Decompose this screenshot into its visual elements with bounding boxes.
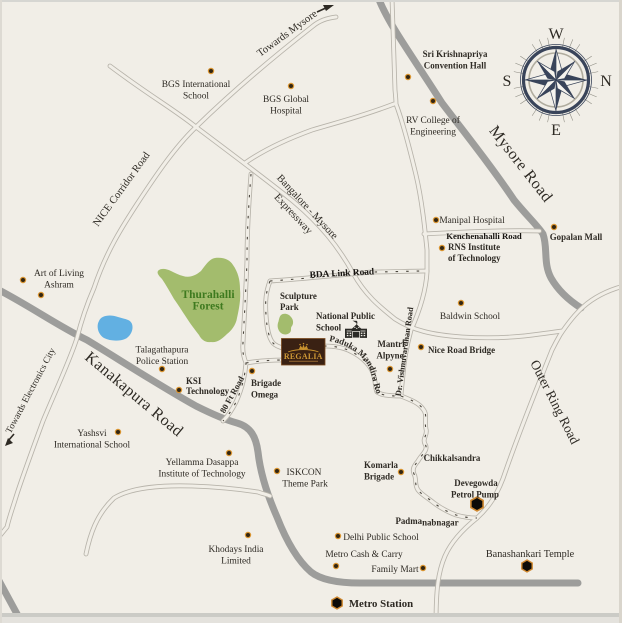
svg-text:Kenchenahalli Road: Kenchenahalli Road	[446, 231, 522, 241]
svg-text:RNS Instituteof Technology: RNS Instituteof Technology	[448, 242, 501, 263]
svg-text:Metro Cash & Carry: Metro Cash & Carry	[325, 550, 403, 560]
svg-text:Baldwin School: Baldwin School	[440, 312, 501, 322]
svg-text:Family Mart: Family Mart	[371, 565, 419, 575]
svg-text:Yellamma DasappaInstitute of T: Yellamma DasappaInstitute of Technology	[158, 458, 245, 480]
svg-text:Chikkalsandra: Chikkalsandra	[424, 453, 481, 463]
svg-text:TalagathapuraPolice Station: TalagathapuraPolice Station	[136, 346, 190, 368]
svg-text:Delhi Public School: Delhi Public School	[343, 533, 419, 543]
svg-text:Nice Road Bridge: Nice Road Bridge	[428, 345, 495, 355]
svg-text:Gopalan Mall: Gopalan Mall	[550, 232, 603, 242]
svg-text:Metro Station: Metro Station	[349, 598, 413, 610]
svg-text:ISKCONTheme Park: ISKCONTheme Park	[282, 468, 328, 490]
svg-text:REGALIA: REGALIA	[284, 352, 323, 361]
svg-text:BrigadeOmega: BrigadeOmega	[251, 378, 281, 400]
svg-text:N: N	[600, 73, 612, 90]
svg-text:KomarlaBrigade: KomarlaBrigade	[364, 460, 399, 482]
svg-text:Sri KrishnapriyaConvention Hal: Sri KrishnapriyaConvention Hall	[423, 49, 488, 71]
svg-text:Banashankari Temple: Banashankari Temple	[486, 549, 575, 560]
svg-text:DevegowdaPetrol Pump: DevegowdaPetrol Pump	[451, 478, 499, 500]
svg-text:Manipal Hospital: Manipal Hospital	[439, 216, 505, 226]
svg-text:Padmanabnagar: Padmanabnagar	[395, 516, 458, 528]
svg-text:MantriAlpyne: MantriAlpyne	[376, 339, 405, 361]
svg-text:W: W	[548, 26, 564, 43]
svg-text:E: E	[551, 122, 561, 139]
svg-text:S: S	[503, 73, 512, 90]
